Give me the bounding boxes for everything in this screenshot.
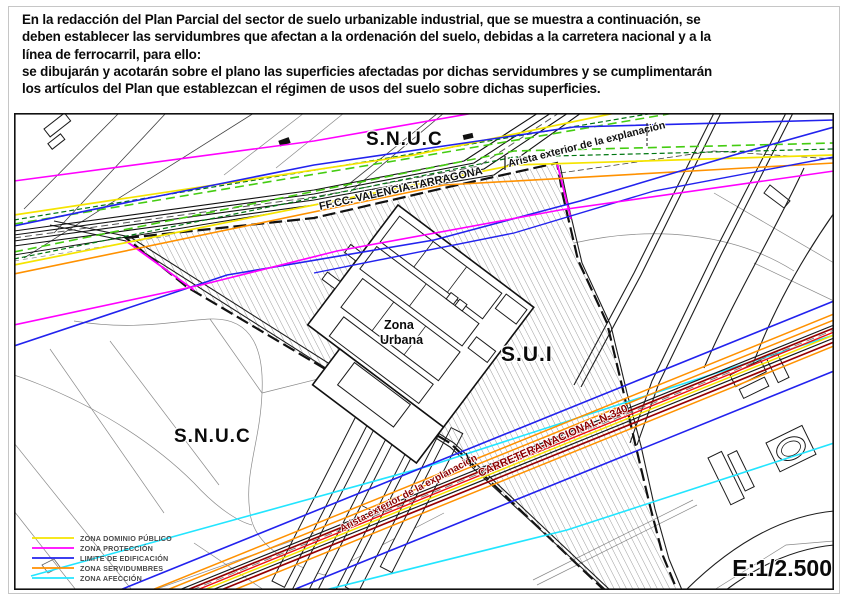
- instruction-line: deben establecer las servidumbres que af…: [22, 28, 834, 45]
- label-zona-urbana: Urbana: [380, 333, 424, 347]
- document-page: En la redacción del Plan Parcial del sec…: [0, 0, 848, 600]
- plan-instructions: En la redacción del Plan Parcial del sec…: [22, 11, 834, 97]
- legend-item: ZONA PROTECCIÓN: [32, 544, 153, 553]
- instruction-line: los artículos del Plan que establezcan e…: [22, 80, 834, 97]
- black-building: [463, 133, 474, 140]
- map-legend: ZONA DOMINIO PÚBLICO ZONA PROTECCIÓN LIM…: [32, 534, 172, 583]
- legend-item-label: LIMITE DE EDIFICACIÓN: [80, 554, 168, 563]
- scale-label: E:1/2.500: [732, 555, 832, 581]
- legend-item: ZONA SERVIDUMBRES: [32, 564, 163, 573]
- legend-item: ZONA DOMINIO PÚBLICO: [32, 534, 172, 543]
- buildings-right-tall: [708, 445, 757, 504]
- plan-map-container: FF.CC. VALENCIA-TARRAGONA Arista exterio…: [14, 113, 834, 590]
- instruction-line: se dibujarán y acotarán sobre el plano l…: [22, 63, 834, 80]
- label-snuc-bottom: S.N.U.C: [174, 426, 251, 447]
- label-zona-urbana: Zona: [384, 318, 415, 332]
- label-sui: S.U.I: [501, 343, 553, 366]
- instruction-line: línea de ferrocarril, para ello:: [22, 46, 834, 63]
- legend-item-label: ZONA DOMINIO PÚBLICO: [80, 534, 172, 543]
- legend-item-label: ZONA SERVIDUMBRES: [80, 564, 163, 573]
- legend-item: ZONA AFECCIÓN: [32, 574, 142, 583]
- legend-item-label: ZONA AFECCIÓN: [80, 574, 142, 583]
- label-snuc-top: S.N.U.C: [366, 129, 443, 150]
- legend-item: LIMITE DE EDIFICACIÓN: [32, 554, 168, 563]
- instruction-line: En la redacción del Plan Parcial del sec…: [22, 11, 834, 28]
- buildings-right-lower: [766, 425, 816, 471]
- plan-map: FF.CC. VALENCIA-TARRAGONA Arista exterio…: [14, 113, 834, 590]
- legend-item-label: ZONA PROTECCIÓN: [80, 544, 153, 553]
